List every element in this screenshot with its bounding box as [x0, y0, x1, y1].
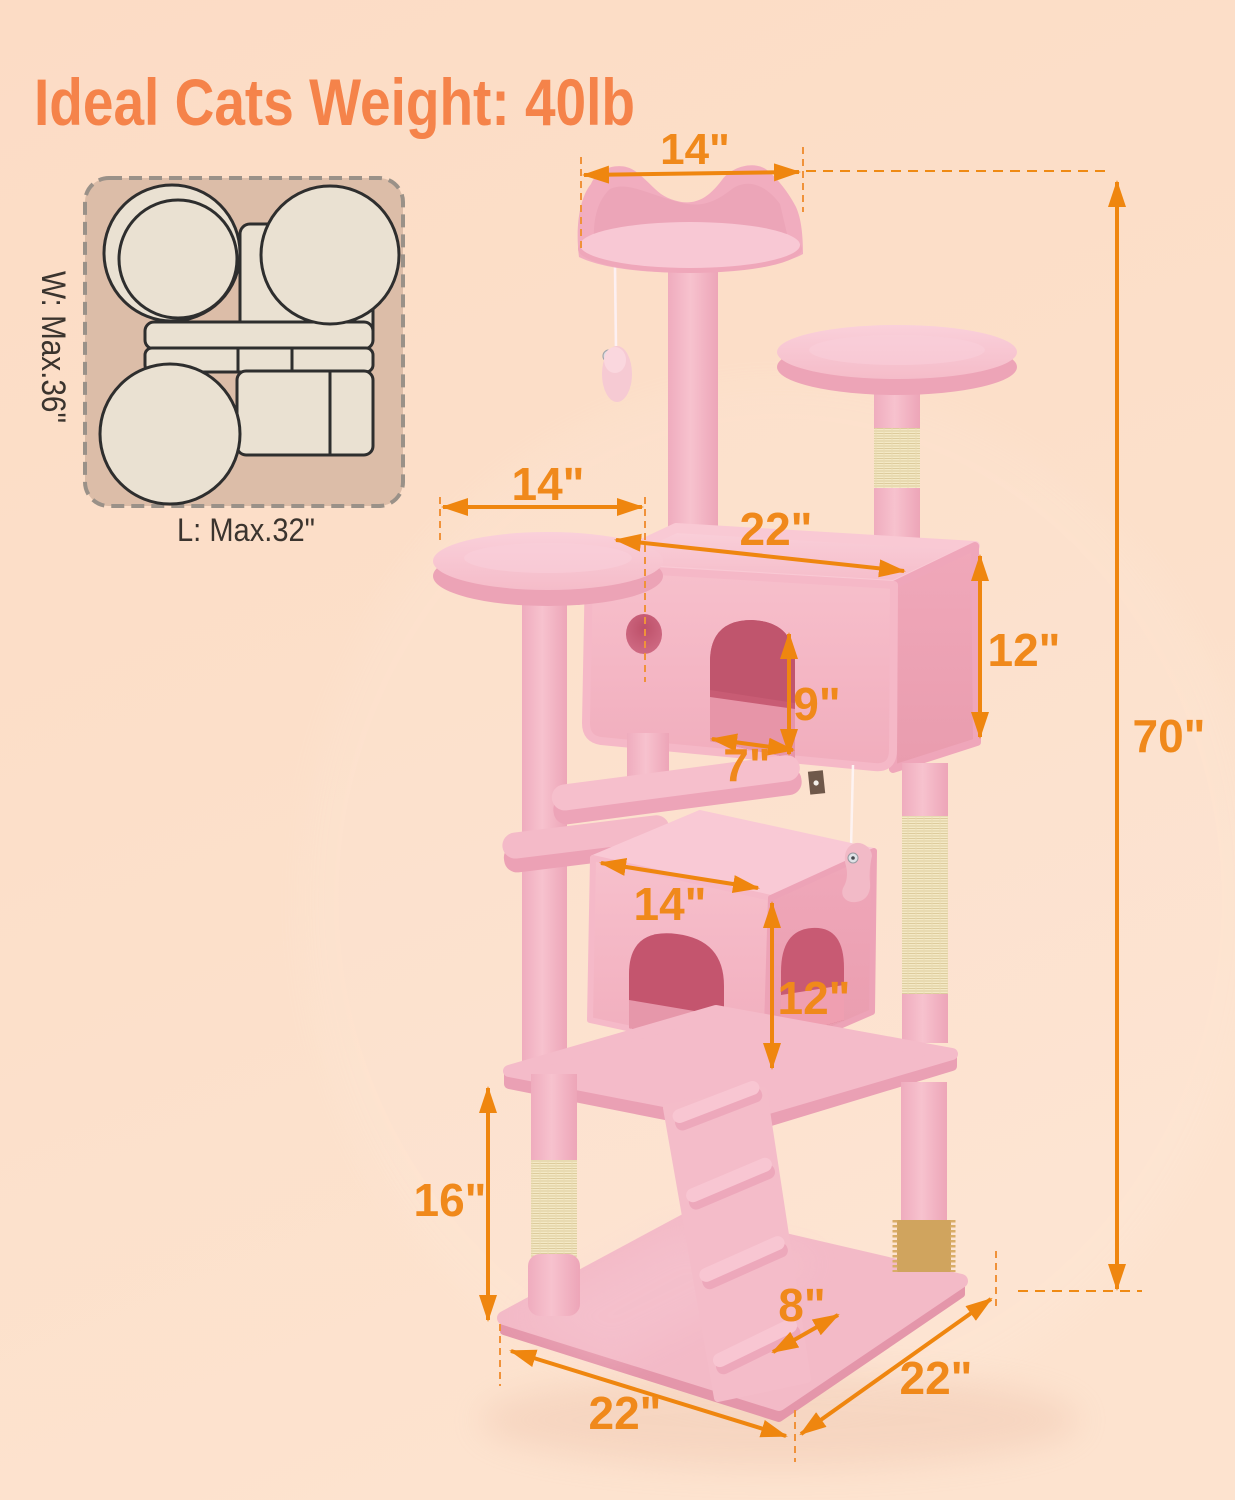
svg-text:70": 70" — [1133, 710, 1206, 762]
svg-text:8": 8" — [778, 1279, 825, 1331]
svg-text:22": 22" — [740, 503, 813, 555]
svg-text:L: Max.32": L: Max.32" — [177, 512, 315, 548]
svg-text:14": 14" — [634, 878, 707, 930]
svg-text:16": 16" — [414, 1174, 487, 1226]
svg-text:22": 22" — [900, 1352, 973, 1404]
svg-text:12": 12" — [778, 972, 851, 1024]
svg-text:7": 7" — [723, 739, 770, 791]
svg-text:W: Max.36": W: Max.36" — [34, 271, 72, 423]
svg-text:12": 12" — [988, 624, 1061, 676]
svg-text:22": 22" — [589, 1387, 662, 1439]
svg-text:14": 14" — [512, 458, 585, 510]
svg-text:14": 14" — [660, 125, 730, 174]
svg-text:9": 9" — [793, 678, 840, 730]
svg-text:Ideal Cats Weight: 40lb: Ideal Cats Weight: 40lb — [34, 65, 635, 139]
